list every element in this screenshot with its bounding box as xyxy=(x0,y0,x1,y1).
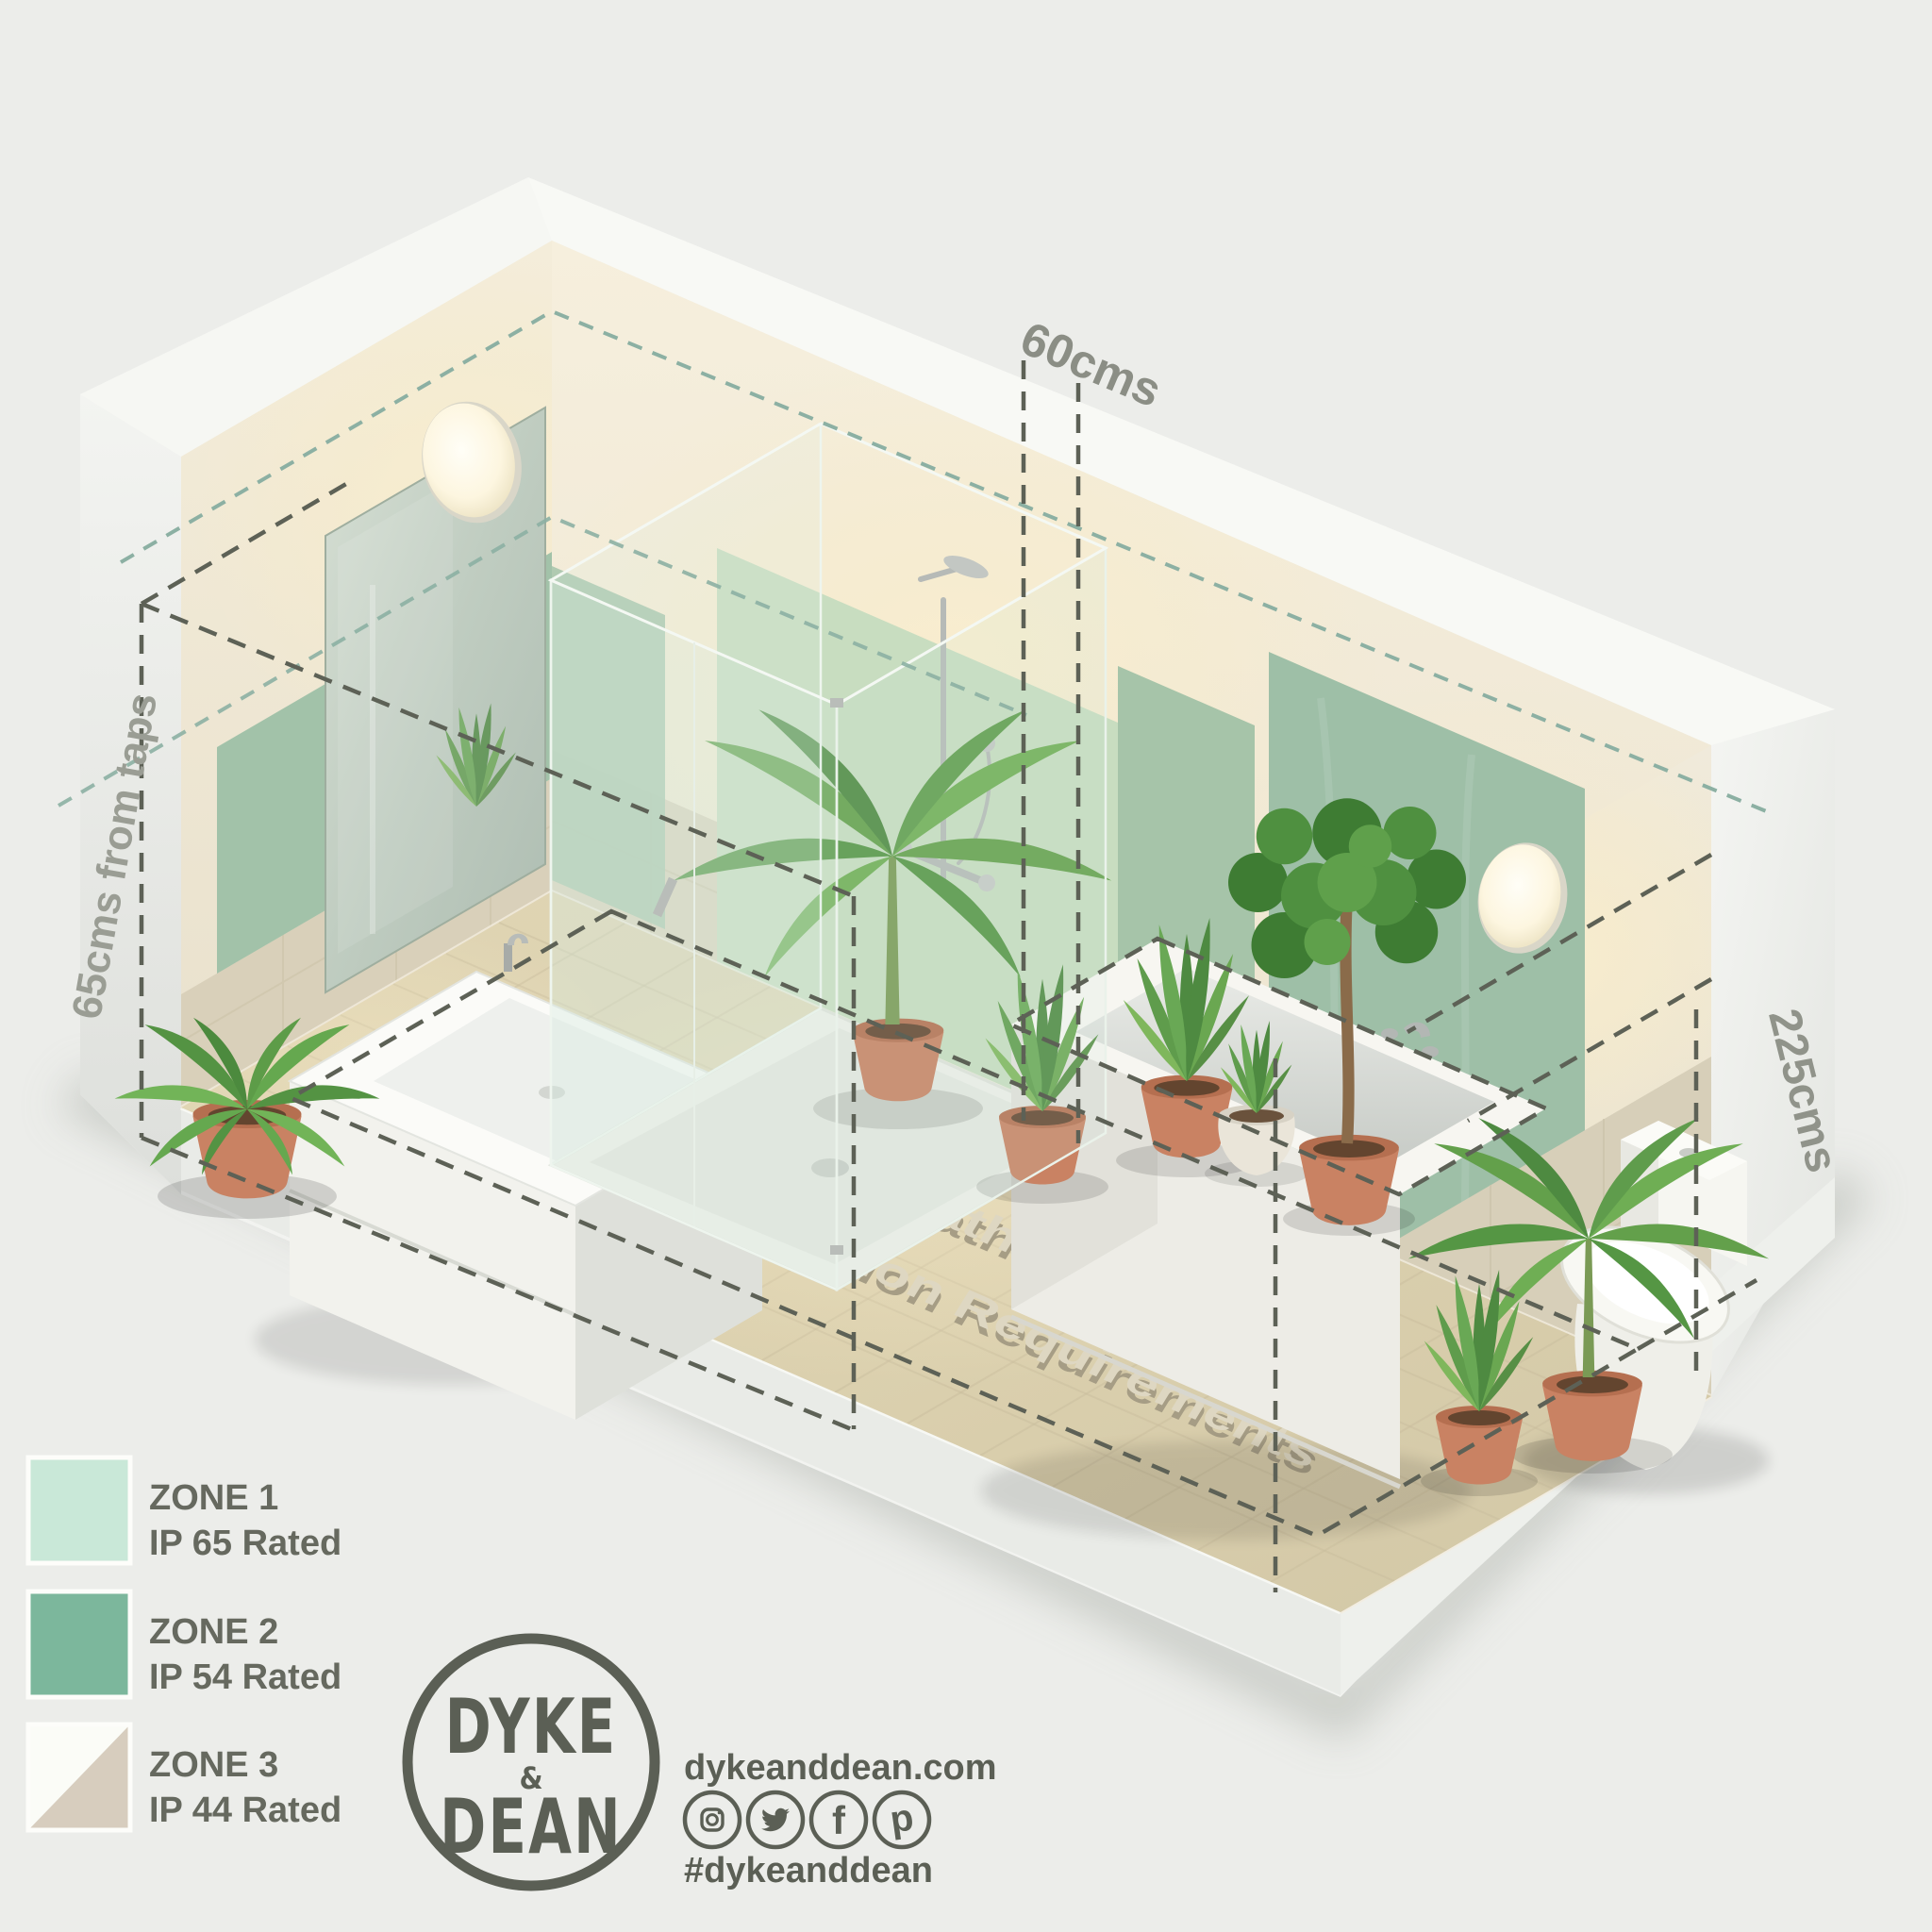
zone2-label: ZONE 2 xyxy=(149,1612,278,1652)
zone3-rating: IP 44 Rated xyxy=(149,1790,341,1830)
zone1-label: ZONE 1 xyxy=(149,1478,278,1518)
zone2-swatch xyxy=(28,1591,130,1697)
zone1-swatch xyxy=(28,1457,130,1563)
zone3-label: ZONE 3 xyxy=(149,1745,278,1785)
hashtag-text: #dykeanddean xyxy=(684,1851,933,1890)
svg-text:f: f xyxy=(832,1798,846,1842)
bathroom-isometric-scene: IP Rated Bathroom Lighting IP Rated Bath… xyxy=(0,0,1932,1932)
infographic-canvas: IP Rated Bathroom Lighting IP Rated Bath… xyxy=(0,0,1932,1932)
logo-text-top: DYKE xyxy=(445,1683,618,1771)
logo-text-bottom: DEAN xyxy=(440,1783,623,1871)
website-text: dykeanddean.com xyxy=(684,1748,997,1788)
zone1-rating: IP 65 Rated xyxy=(149,1524,341,1563)
zone2-rating: IP 54 Rated xyxy=(149,1657,341,1697)
